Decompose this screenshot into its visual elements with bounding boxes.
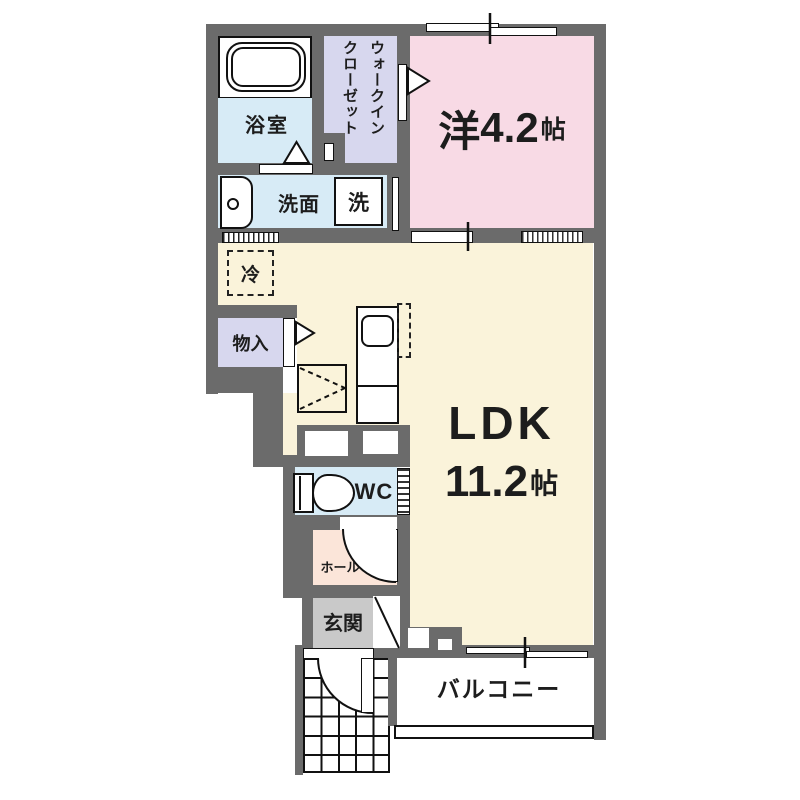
label-ldk-size: 11.2帖 [410,456,593,508]
wall-niche [363,431,398,454]
wall-niche [408,628,429,648]
bathtub-icon [231,47,301,87]
floorplan-canvas: 浴室 ウォークイン クローゼット 洋4.2帖 洗面 洗 冷 物入 LDK 11.… [0,0,800,800]
kitchen-dashed-outline [397,303,411,358]
wall [594,24,606,740]
label-walkin-closet-line1: ウォークイン [363,40,390,172]
wall [302,595,313,650]
label-wc: WC [350,478,398,506]
label-washer: 洗 [334,177,383,226]
label-storage: 物入 [218,318,283,367]
kitchen-counter-box [297,364,347,413]
wall [283,455,410,467]
label-washroom: 洗面 [266,189,332,215]
closet-opening [324,143,334,161]
wall [206,24,218,394]
toilet-tank-icon [299,476,301,510]
washroom-opening [392,177,399,231]
door-swing-marker [398,64,407,121]
entrance-door-leaf [361,658,374,713]
toilet-tank-icon [293,473,314,513]
kitchen-sink-icon [361,315,394,347]
window [489,27,557,36]
balcony-sliding-window [526,651,588,658]
entrance-step [373,596,400,648]
wall [253,380,283,467]
washbasin-drain-icon [227,198,239,210]
label-western-room: 洋4.2帖 [410,100,594,156]
sliding-door-panel [521,231,583,243]
label-walkin-closet-line2: クローゼット [336,40,363,172]
sliding-door-panel [411,231,473,243]
label-entrance: 玄関 [313,595,373,648]
kitchen-divider [356,385,399,387]
wall [295,645,303,775]
door-swing-marker [283,318,295,367]
label-ldk: LDK [410,398,593,448]
label-walkin-closet: ウォークイン クローゼット [336,40,390,172]
label-hall: ホール [312,556,368,576]
label-refrigerator: 冷 [227,250,274,296]
label-western-name: 洋 [438,98,480,159]
room-ldk [218,243,593,305]
label-western-size: 4.2 [480,104,538,152]
bathroom-door-threshold [259,164,313,174]
counter-hatch [222,232,279,243]
label-ldk-size-unit: 帖 [530,462,558,502]
label-balcony: バルコニー [417,672,581,702]
wall-niche [438,639,452,650]
hall-door-leaf [389,529,398,582]
balcony-sliding-window [466,647,530,654]
label-bathroom: 浴室 [232,110,302,136]
wall [388,658,397,726]
accordion-door-hatch [397,468,410,515]
balcony-railing [394,725,594,739]
label-ldk-size-value: 11.2 [445,457,528,507]
entrance-porch-tiles [303,658,390,773]
label-western-unit: 帖 [541,110,566,146]
wall-niche [305,431,348,456]
wall [218,305,297,318]
